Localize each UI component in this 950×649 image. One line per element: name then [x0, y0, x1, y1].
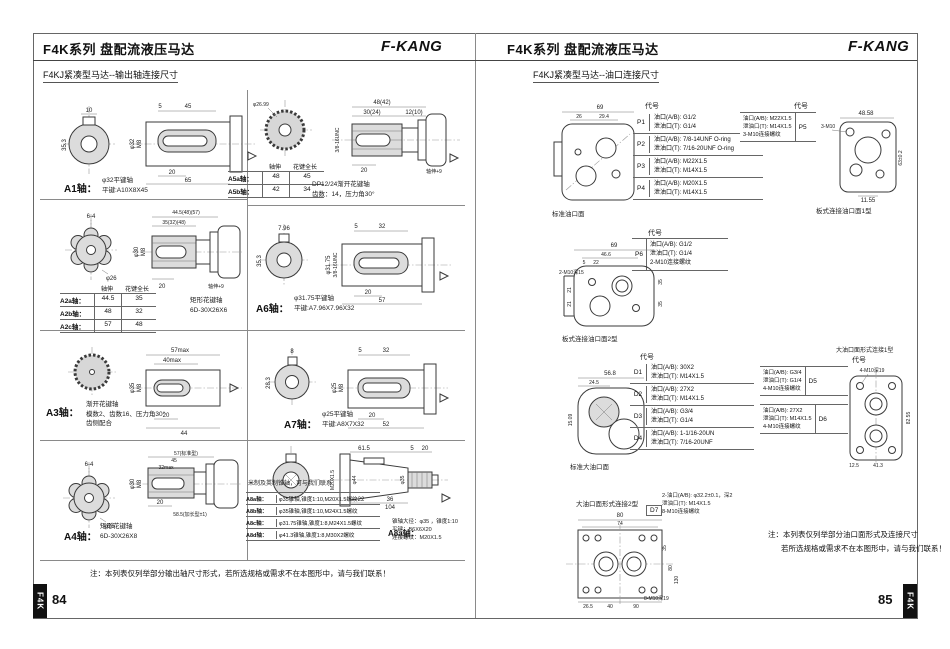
- brand-logo-left: F-KANG: [381, 38, 442, 55]
- a4-shaft-label: A4轴：: [64, 528, 97, 543]
- dim-label: 7.96: [278, 226, 290, 232]
- table-row: A2b轴：4832: [60, 307, 156, 320]
- dim-label: 5: [158, 104, 162, 110]
- a3-shaft-label: A3轴：: [46, 404, 79, 419]
- table-row: D4油口(A/B): 1-1/16-20UN泄油口(T): 7/16-20UNF: [630, 428, 754, 450]
- left-page-note: 注：本列表仅列举部分输出轴尺寸形式，若所选规格或需求不在本图形中，请与我们联系！: [90, 568, 390, 579]
- dim-label: 35: [658, 279, 664, 285]
- a5-dimension-table: 轴伸花键全长 A5a轴：4845 A5b轴：4234: [228, 162, 324, 198]
- dim-label: φ26.99: [253, 102, 269, 108]
- dim-label: 20: [361, 168, 368, 174]
- right-page-note: 注：本列表仅列举部分油口面形式及连接尺寸 若所选规格或需求不在本图形中，请与我们…: [768, 528, 946, 556]
- a8-note: 米制及英制锥轴，可与我们联系: [248, 480, 332, 490]
- dim-label: 2-M10深15: [559, 269, 584, 276]
- dim-label: 20: [169, 170, 176, 176]
- plate-port-face-1-drawing: 48.58 11.55 3-M10 63±0.2: [820, 108, 908, 203]
- a2-end-view-drawing: 6-4 φ26: [58, 212, 124, 284]
- dim-label: 48.58: [858, 111, 874, 117]
- header-rule: [33, 60, 917, 61]
- dim-label: 8-M10深19: [644, 595, 669, 602]
- dim-label: 22: [593, 260, 599, 266]
- dim-label: 5: [583, 260, 586, 266]
- dim-label: φ30: [130, 478, 136, 489]
- dim-label: 12(10): [405, 110, 422, 116]
- dim-label: 29.4: [599, 114, 609, 120]
- dim-label: 20: [369, 413, 376, 419]
- catalog-spread: F4K系列 盘配流液压马达 F-KANG F4KJ紧凑型马达--输出轴连接尺寸 …: [0, 0, 950, 649]
- dim-label: 5: [410, 446, 414, 452]
- dim-label: M8: [141, 247, 147, 256]
- d-port-table: D1油口(A/B): 30X2泄油口(T): M14X1.5 D2油口(A/B)…: [630, 362, 754, 450]
- dim-label: 15.09: [568, 414, 574, 427]
- dim-label: 11.55: [861, 198, 876, 204]
- code-header: 代号: [648, 228, 662, 238]
- dim-label: 6-4: [85, 462, 94, 468]
- plate-port-face-1-caption: 板式连接油口面1型: [816, 205, 872, 215]
- dim-label: 30(24): [363, 110, 380, 116]
- dim-label: 35(32)(48): [162, 220, 186, 226]
- dim-label: 104: [385, 505, 396, 511]
- dim-label: M8: [137, 139, 143, 148]
- row-line: [40, 560, 465, 561]
- table-row: D2油口(A/B): 27X2泄油口(T): M14X1.5: [630, 384, 754, 406]
- dim-label: 24.5: [589, 380, 599, 386]
- page-divider: [475, 33, 476, 618]
- dim-label: 40: [607, 604, 613, 610]
- dim-label: φ25: [332, 382, 338, 393]
- dim-label: 40max: [163, 358, 181, 364]
- a8a-shaft-detail: 锥轴大径：φ35 ，锥度1:10平键：B6X6X20连接螺纹：M20X1.5: [392, 518, 458, 542]
- dim-label: 48(42): [373, 100, 390, 106]
- dim-label: 80: [668, 565, 674, 571]
- code-header: 代号: [794, 101, 808, 111]
- plate-port-face-2-caption: 板式连接油口面2型: [562, 333, 618, 343]
- dim-label: 6-4: [87, 214, 96, 220]
- a1-end-view-drawing: 10 35.3: [58, 104, 120, 176]
- page-title-left: F4K系列 盘配流液压马达: [43, 39, 195, 58]
- a2-shaft-desc: 矩形花键轴6D-30X26X6: [190, 296, 227, 315]
- dim-label: 130: [674, 576, 680, 585]
- page-title-right: F4K系列 盘配流液压马达: [507, 39, 659, 58]
- dim-label: 65: [185, 178, 192, 184]
- left-page-tab: F4K: [33, 584, 47, 618]
- a3-shaft-desc: 渐开花键轴模数2、齿数16、压力角30°齿侧配合: [86, 400, 165, 429]
- row-line: [247, 205, 465, 206]
- dim-label: 20: [157, 500, 164, 506]
- dim-label: 45: [185, 104, 192, 110]
- right-page-number: 85: [878, 592, 892, 607]
- right-page-tab: F4K: [903, 584, 917, 618]
- dim-label: 41.3: [873, 463, 883, 469]
- dim-label: 3/8-16UNC: [333, 252, 339, 277]
- dim-label: 5: [358, 348, 362, 354]
- dim-label: φ35: [130, 382, 136, 393]
- table-row: A8d轴：φ41.3锥轴,锥度1:8,M30X2螺纹: [246, 529, 380, 541]
- dim-label: 44: [181, 431, 188, 437]
- a7-end-view-drawing: 8 28.3: [262, 346, 322, 408]
- dim-label: 12.5: [849, 463, 859, 469]
- dim-label: 35.3: [62, 139, 68, 151]
- dim-label: M8: [137, 479, 143, 488]
- section-subtitle-left: F4KJ紧凑型马达--输出轴连接尺寸: [43, 68, 178, 81]
- brand-logo-right: F-KANG: [848, 38, 909, 55]
- dim-label: 80: [617, 513, 624, 519]
- dim-label: 35: [658, 301, 664, 307]
- section-subtitle-right: F4KJ紧凑型马达--油口连接尺寸: [533, 68, 659, 81]
- a5-end-view-drawing: φ26.99: [252, 98, 318, 158]
- a2-side-view-drawing: 44.5(48)(57) 35(32)(48) φ30 M8 20 轴伸+9: [128, 206, 246, 291]
- dim-label: 35: [662, 545, 668, 551]
- code-header: 代号: [640, 352, 654, 362]
- a4-shaft-desc: 矩形花键轴6D-30X26X8: [100, 522, 137, 541]
- dim-label: 32: [379, 224, 386, 230]
- row-line: [40, 199, 247, 200]
- big-port-face-1-caption: 大油口面形式连接1型: [836, 345, 893, 354]
- dim-label: φ26: [106, 276, 117, 282]
- dim-label: 44.5(48)(57): [172, 210, 200, 216]
- dim-label: 52: [383, 422, 390, 428]
- p5-port-box: 油口(A/B): M22X1.5泄油口(T): M14X1.53-M10连接螺纹…: [740, 112, 816, 142]
- a1-shaft-label: A1轴：: [64, 180, 97, 195]
- dim-label: 21: [567, 287, 573, 293]
- dim-label: 20: [365, 290, 372, 296]
- a5-shaft-desc: DP12/24渐开花键轴齿数：14，压力角30°: [312, 180, 375, 199]
- dim-label: 3/8-16UNC: [335, 127, 341, 152]
- a7-shaft-desc: φ25平键轴平键:A8X7X32: [322, 410, 364, 429]
- dim-label: 32: [383, 348, 390, 354]
- dim-label: 74: [617, 521, 623, 527]
- dim-label: 35.3: [257, 255, 263, 267]
- table-row: A5a轴：4845: [228, 171, 324, 185]
- dim-label: 26.5: [583, 604, 593, 610]
- table-row: D3油口(A/B): G3/4泄油口(T): G1/4: [630, 406, 754, 428]
- a3-end-view-drawing: [62, 346, 122, 398]
- d5-port-box: 油口(A/B): G3/4泄油口(T): G1/44-M10连接螺纹 D5: [760, 366, 848, 396]
- dim-label: M8: [137, 383, 143, 392]
- a4-side-view-drawing: 57(标准型) 45 32max φ30 M8 20 58.5(加长型±1): [126, 448, 246, 518]
- row-line: [40, 440, 465, 441]
- big-port-face-2-drawing: 80 74 26.5 40 90 35 80 130 8-M10深19: [560, 510, 680, 610]
- table-row: A5b轴：4234: [228, 185, 324, 198]
- code-header: 代号: [645, 101, 659, 111]
- dim-label: M8: [339, 383, 345, 392]
- dim-label: 20: [422, 446, 429, 452]
- a6-shaft-desc: φ31.75平键轴平键:A7.96X7.96X32: [294, 294, 354, 313]
- dim-label: 82.55: [906, 412, 912, 425]
- table-row: A2c轴：5748: [60, 320, 156, 333]
- dim-label: 4-M10深19: [860, 367, 885, 374]
- d6-port-box: 油口(A/B): 27X2泄油口(T): M14X1.54-M10连接螺纹 D6: [760, 404, 848, 434]
- table-row: P3油口(A/B): M22X1.5泄油口(T): M14X1.5: [633, 156, 763, 178]
- a8-taper-table: A8a轴：φ35锥轴,锥度1:10,M20X1.5螺纹 A8b轴：φ35锥轴,锥…: [246, 492, 380, 541]
- dim-label: φ30: [134, 246, 140, 257]
- a6-end-view-drawing: 7.96 35.3: [254, 222, 314, 288]
- dim-label: 57(标准型): [174, 450, 198, 457]
- dim-label: 3-M10: [821, 124, 835, 130]
- dim-label: 10: [86, 108, 93, 114]
- table-row: A8c轴：φ31.75锥轴,锥度1:8,M24X1.5螺纹: [246, 517, 380, 529]
- dim-label: 5: [354, 224, 358, 230]
- a2-dimension-table: 轴伸花键全长 A2a轴：44.535 A2b轴：4832 A2c轴：5748: [60, 284, 156, 333]
- dim-label: 46.6: [601, 252, 611, 258]
- big-port-face-2-caption: 大油口面形式连接2型: [576, 498, 638, 508]
- left-page-number: 84: [52, 592, 66, 607]
- table-row: A8a轴：φ35锥轴,锥度1:10,M20X1.5螺纹: [246, 492, 380, 505]
- d7-code-label: D7: [646, 505, 662, 516]
- dim-label: 61.5: [358, 446, 370, 452]
- dim-label: 32max: [158, 465, 174, 471]
- standard-big-port-face-caption: 标准大油口面: [570, 461, 609, 471]
- dim-label: 57: [379, 298, 386, 304]
- a7-shaft-label: A7轴：: [284, 416, 317, 431]
- d7-port-detail: 2-油口(A/B): φ32.2±0.1，深2 泄油口(T): M14X1.5 …: [662, 492, 732, 516]
- dim-label: φ44: [352, 475, 358, 484]
- dim-label: 28.3: [266, 377, 272, 389]
- a5-side-view-drawing: 48(42) 30(24) 12(10) 3/8-16UNC 20 轴伸+9: [326, 96, 466, 176]
- dim-label: 轴伸+9: [208, 283, 224, 290]
- table-row: A8b轴：φ35锥轴,锥度1:10,M24X1.5螺纹: [246, 505, 380, 517]
- dim-label: 36: [387, 497, 394, 503]
- table-row: A2a轴：44.535: [60, 293, 156, 307]
- dim-label: 20: [159, 284, 166, 290]
- dim-label: 69: [611, 243, 618, 249]
- dim-label: 45: [171, 458, 177, 464]
- dim-label: φ32: [130, 138, 136, 149]
- dim-label: 56.8: [604, 371, 616, 377]
- dim-label: 26: [576, 114, 582, 120]
- dim-label: 57max: [171, 348, 189, 354]
- standard-port-face-caption: 标准油口面: [552, 208, 585, 218]
- dim-label: φ31.75: [326, 255, 332, 275]
- dim-label: 21: [567, 301, 573, 307]
- dim-label: 63±0.2: [898, 150, 904, 165]
- a1-shaft-desc: φ32平键轴平键:A10X8X45: [102, 176, 148, 195]
- dim-label: 8: [290, 349, 294, 355]
- plate-port-face-2-drawing: 69 46.6 5 22 2-M10深15 21 21 35 35: [558, 240, 670, 332]
- dim-label: 90: [633, 604, 639, 610]
- table-row: D1油口(A/B): 30X2泄油口(T): M14X1.5: [630, 362, 754, 384]
- dim-label: φ35: [400, 475, 406, 484]
- big-port-face-1-drawing: 4-M10深19 82.55 41.3 12.5: [838, 364, 914, 468]
- a6-shaft-label: A6轴：: [256, 300, 289, 315]
- table-row: P4油口(A/B): M20X1.5泄油口(T): M14X1.5: [633, 178, 763, 200]
- dim-label: 69: [597, 105, 604, 111]
- dim-label: 58.5(加长型±1): [173, 511, 207, 518]
- dim-label: 轴伸+9: [426, 168, 442, 175]
